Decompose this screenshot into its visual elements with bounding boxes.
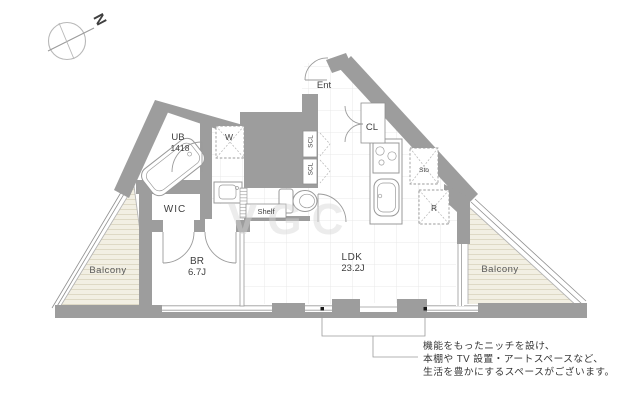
cl-label: CL [366, 122, 378, 133]
br-size-label: 6.7J [188, 267, 206, 278]
wic-door-opening [163, 219, 194, 233]
shelf-label: Shelf [257, 207, 275, 216]
balcony-left-label: Balcony [89, 265, 126, 276]
ldk-label: LDK [342, 252, 363, 263]
floor-plan-canvas: VGC Ent CL SCL SCL UB 1418 W WIC BR 6.7J… [0, 0, 640, 412]
balcony-right-label: Balcony [481, 264, 518, 275]
watermark: VGC [228, 195, 353, 244]
storage-niche [410, 148, 438, 184]
washer-label: W [225, 132, 233, 142]
annotation-line-2: 本棚や TV 設置・アートスペースなど、 [423, 352, 603, 365]
scl-upper-label: SCL [308, 135, 315, 148]
storage-label: Sto [419, 167, 429, 174]
ldk-size-label: 23.2J [341, 263, 364, 274]
annotation-line-1: 機能をもったニッチを設け、 [423, 339, 555, 352]
wic-label: WIC [164, 204, 186, 215]
annotation-line-3: 生活を豊かにするスペースがございます。 [423, 365, 615, 378]
floor-plan-page: VGC Ent CL SCL SCL UB 1418 W WIC BR 6.7J… [0, 0, 640, 412]
br-label: BR [190, 256, 204, 267]
ent-label: Ent [317, 80, 332, 91]
stove [373, 143, 399, 173]
niche-post-left [321, 307, 325, 311]
ub-label: UB [171, 132, 184, 143]
niche-post-right [424, 307, 428, 311]
ub-size-label: 1418 [171, 143, 190, 153]
scl-lower-label: SCL [308, 162, 315, 175]
refrigerator-label: R [431, 204, 437, 213]
washer-space [216, 126, 244, 158]
kitchen-counter [370, 139, 402, 224]
